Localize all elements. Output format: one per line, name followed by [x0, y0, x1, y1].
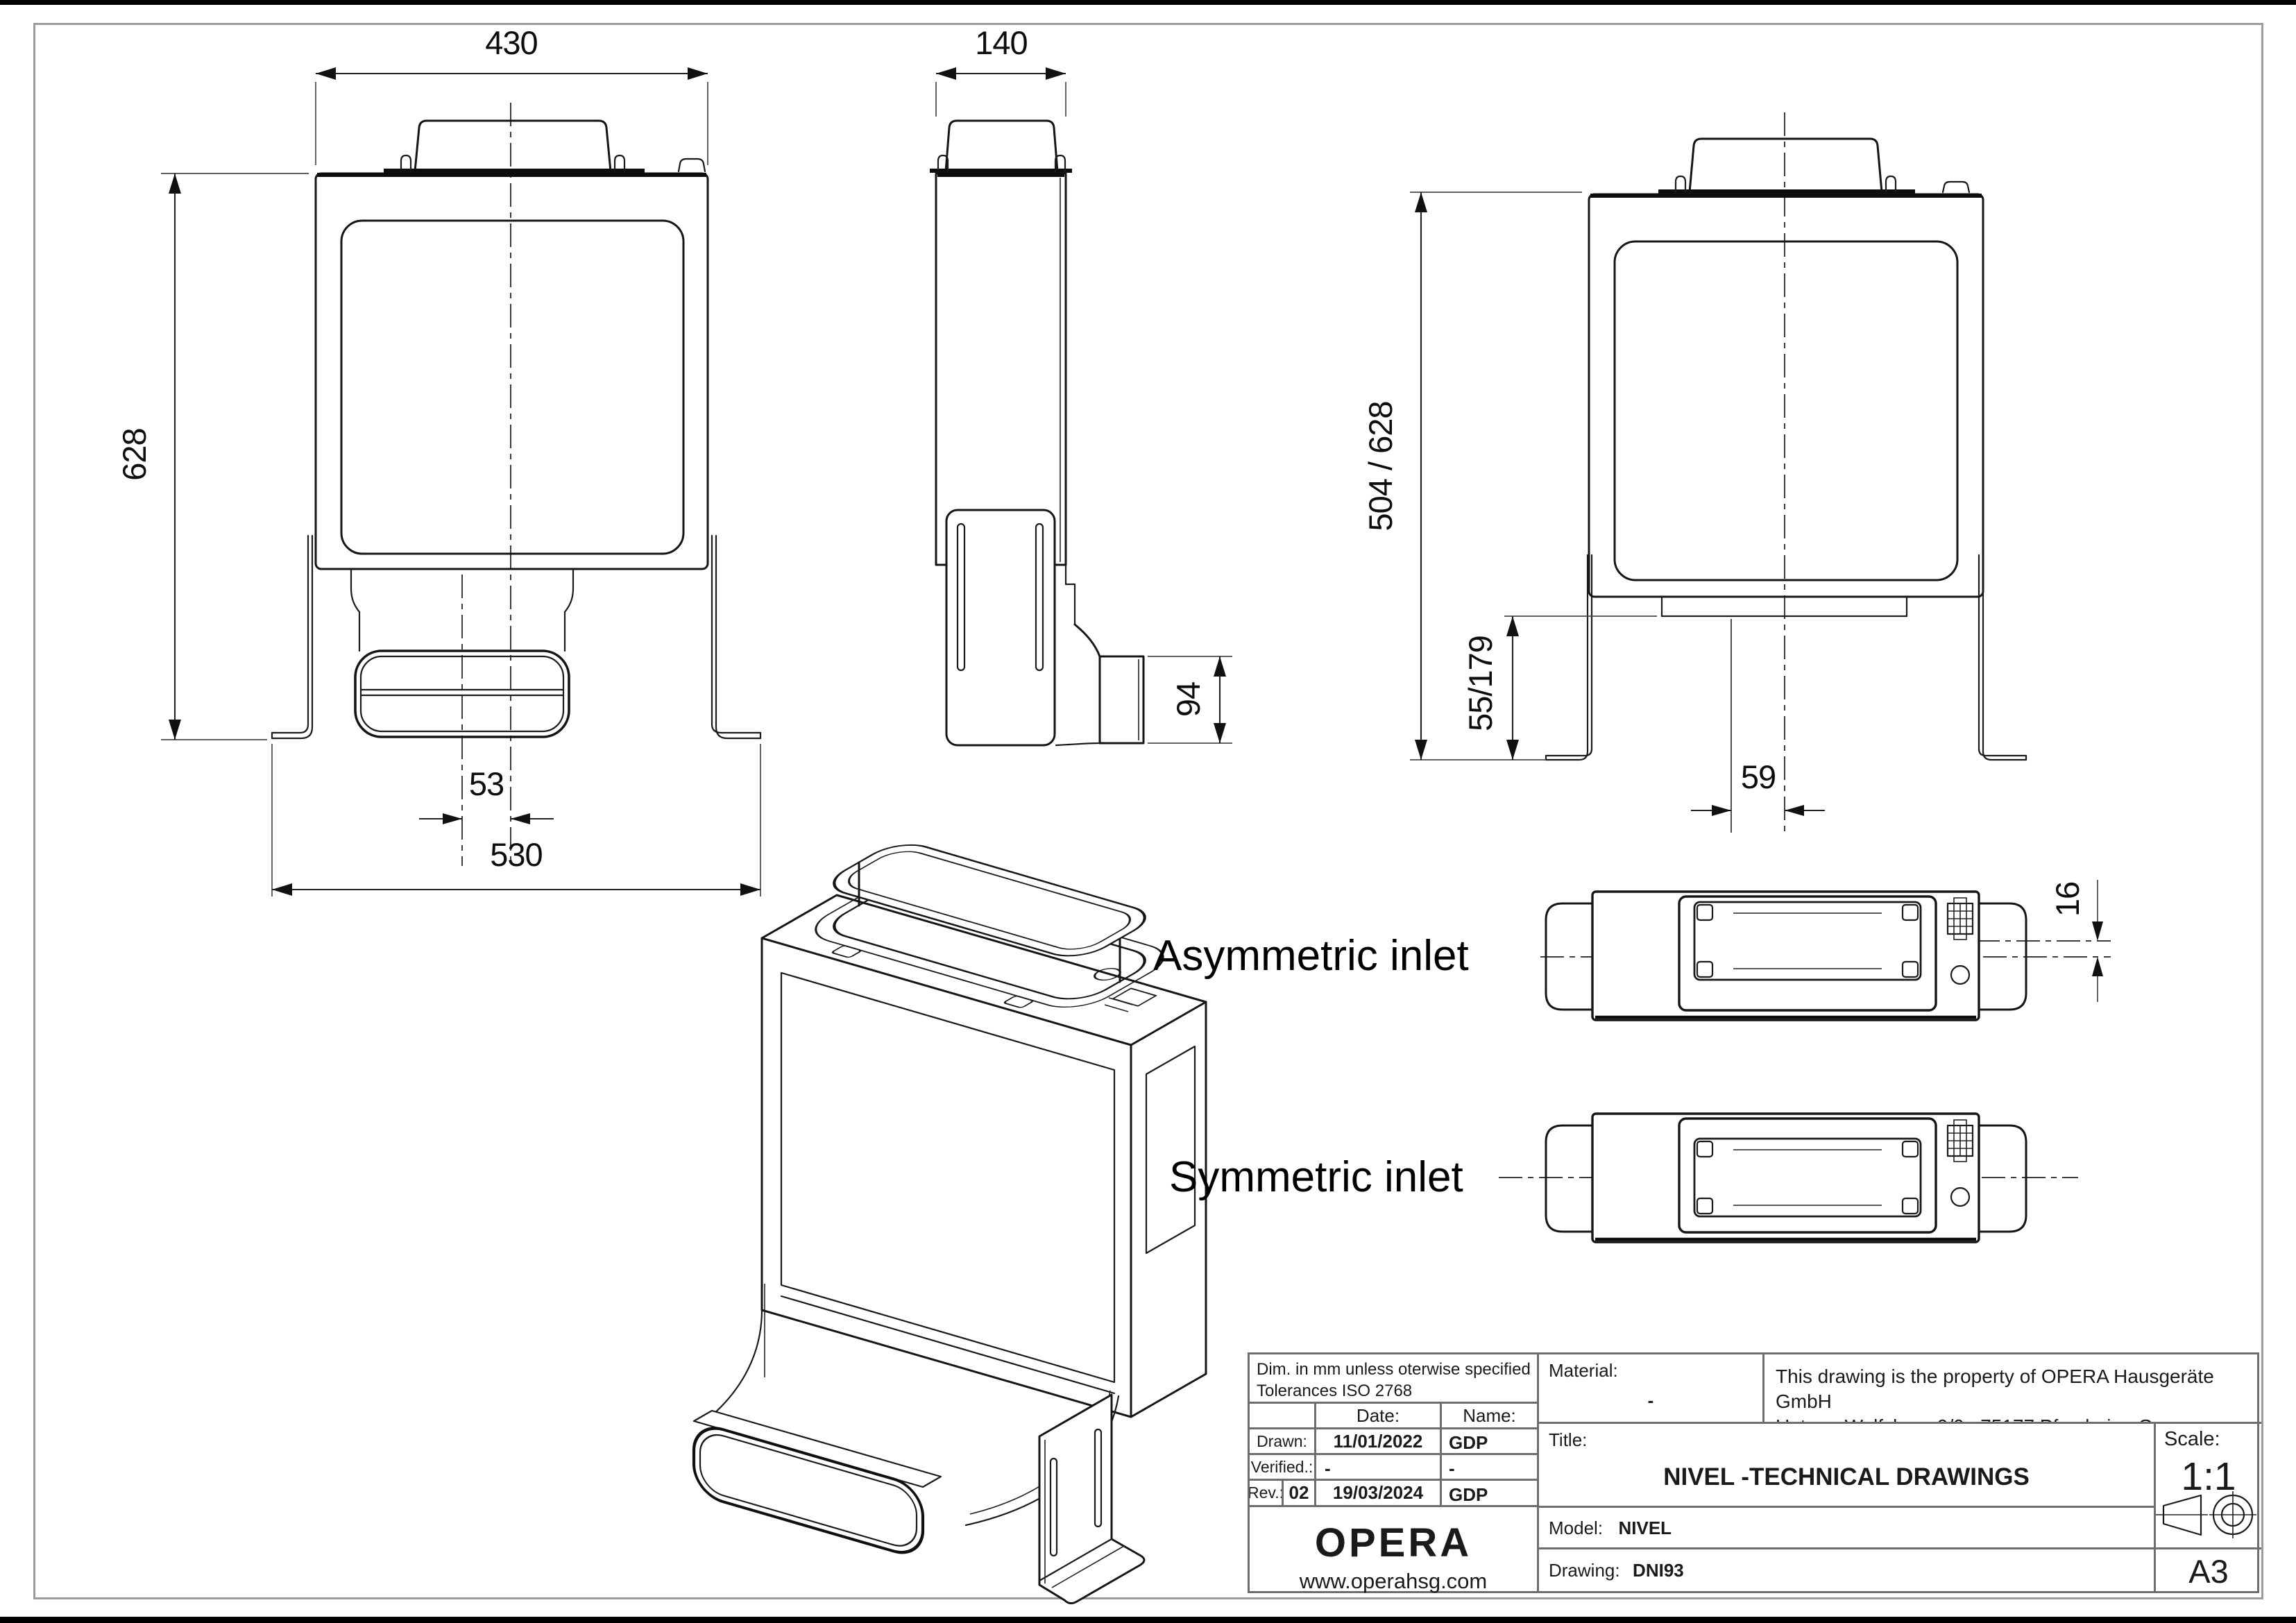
verified-date: - — [1316, 1455, 1442, 1481]
front-bracket-right — [712, 536, 760, 733]
side-bracket-plate — [946, 510, 1055, 745]
rev-label: Rev.: — [1250, 1481, 1284, 1507]
header-blank — [1250, 1404, 1316, 1429]
property-notice: This drawing is the property of OPERA Ha… — [1764, 1354, 2261, 1424]
dim-628: 628 — [116, 428, 153, 480]
title-block: Dim. in mm unless oterwise specified Tol… — [1248, 1352, 2259, 1593]
sym-connector — [1948, 1120, 1973, 1162]
back-panel — [1615, 241, 1957, 580]
verified-name: - — [1442, 1455, 1539, 1481]
dim-140: 140 — [975, 24, 1027, 61]
symmetric-inlet-label: Symmetric inlet — [1169, 1153, 1463, 1201]
front-bracket-left — [272, 536, 308, 733]
front-view: 430 628 — [116, 24, 760, 897]
drawing-sheet: 430 628 — [0, 0, 2296, 1623]
scale-value: 1:1 — [2156, 1454, 2261, 1499]
dim-16: 16 — [2049, 882, 2086, 917]
drawn-date: 11/01/2022 — [1316, 1429, 1442, 1455]
side-outlet — [1100, 656, 1143, 743]
side-elbow — [1075, 624, 1100, 656]
scale-cell: Scale: 1:1 — [2156, 1424, 2261, 1549]
front-body — [316, 173, 708, 569]
opera-logo: OPERA — [1250, 1520, 1537, 1566]
back-body — [1589, 194, 1983, 597]
drawing-title: NIVEL -TECHNICAL DRAWINGS — [1539, 1463, 2154, 1491]
dim-430: 430 — [485, 24, 537, 61]
rev-date: 19/03/2024 — [1316, 1481, 1442, 1507]
back-view: 504 / 628 55/179 59 — [1362, 112, 2026, 833]
asymmetric-inlet-view: Asymmetric inlet — [1153, 880, 2111, 1020]
name-header: Name: — [1442, 1404, 1539, 1429]
dim-94: 94 — [1170, 682, 1207, 717]
website-text: www.operahsg.com — [1250, 1569, 1537, 1593]
model-value: NIVEL — [1619, 1518, 1672, 1538]
drawing-number-cell: Drawing: DNI93 — [1539, 1549, 2156, 1593]
drawing-number: DNI93 — [1633, 1560, 1684, 1581]
logo-cell: OPERA www.operahsg.com — [1250, 1507, 1539, 1593]
asymmetric-inlet-label: Asymmetric inlet — [1153, 932, 1469, 980]
drawn-name: GDP — [1442, 1429, 1539, 1455]
dim-59: 59 — [1741, 758, 1776, 795]
dim-53: 53 — [469, 765, 504, 802]
dim-530: 530 — [490, 836, 542, 873]
drawn-label: Drawn: — [1250, 1429, 1316, 1455]
sym-cap-left — [1546, 1125, 1592, 1232]
sym-cap-right — [1979, 1125, 2026, 1232]
sheet-size: A3 — [2156, 1549, 2261, 1593]
symmetric-inlet-view: Symmetric inlet — [1169, 1114, 2078, 1242]
back-inlet-duct — [1690, 139, 1882, 192]
material-cell: Material: - — [1539, 1354, 1764, 1424]
front-panel — [341, 221, 683, 554]
dim-55-179: 55/179 — [1462, 636, 1499, 731]
dim-504-628: 504 / 628 — [1362, 401, 1399, 531]
title-cell: Title: NIVEL -TECHNICAL DRAWINGS — [1539, 1424, 2156, 1508]
model-cell: Model: NIVEL — [1539, 1508, 2156, 1549]
side-body — [936, 173, 1066, 565]
back-leg-right — [1983, 555, 2026, 760]
side-inlet-duct — [946, 121, 1057, 171]
verified-label: Verified.: — [1250, 1455, 1316, 1481]
date-header: Date: — [1316, 1404, 1442, 1429]
asym-connector — [1948, 898, 1973, 940]
isometric-view — [694, 839, 1206, 1603]
dimension-note: Dim. in mm unless oterwise specified Tol… — [1250, 1354, 1539, 1404]
front-button — [679, 159, 705, 171]
rev-name: GDP — [1442, 1481, 1539, 1507]
rev-number: 02 — [1284, 1481, 1316, 1507]
iso-body — [762, 895, 1206, 1417]
back-leg-left — [1546, 555, 1588, 760]
front-inlet-duct — [415, 121, 611, 171]
side-view: 140 — [930, 24, 1232, 745]
iso-bracket — [1039, 1395, 1144, 1604]
